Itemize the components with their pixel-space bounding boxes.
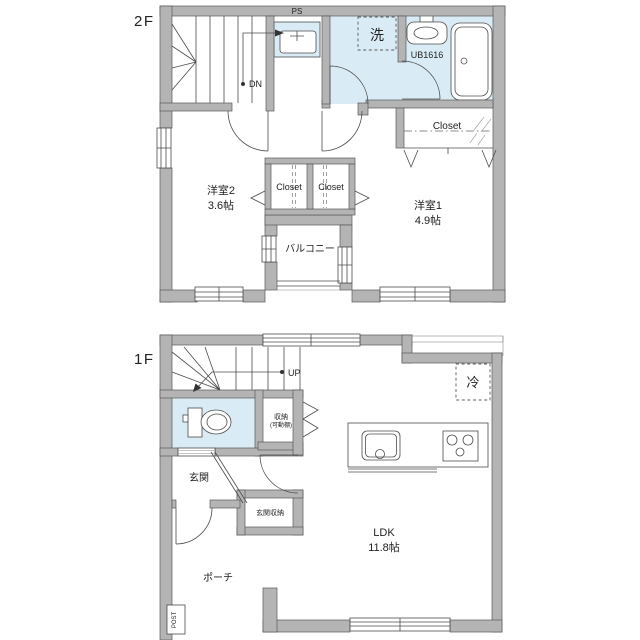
washroom-floor [324,12,398,104]
floor-2f-plan: 2F PS 洗 UB1616 DN Closet Closet Closet 洋… [134,6,505,302]
window [157,128,171,168]
post-label: POST [172,612,178,629]
bifold-door-marks [404,150,496,167]
window [380,287,450,301]
room2-name-label: 洋室2 [207,183,235,197]
closet-right-label: Closet [318,182,344,192]
floor-2f-label: 2F [134,13,155,30]
floor-plan-page: 2F PS 洗 UB1616 DN Closet Closet Closet 洋… [0,0,640,640]
counter-edge [348,469,437,472]
1f-stairs [172,347,300,392]
vanity-basin [280,31,316,53]
storage-bifold-door [303,402,318,437]
room1-name-label: 洋室1 [414,198,442,212]
toilet-sliding-door [178,448,215,456]
balcony-window [338,247,352,283]
bathtub [451,23,492,100]
1f-windows [263,334,450,631]
balcony-label: バルコニー [285,243,335,255]
kitchen-sink [362,431,400,460]
toilet-bowl [201,410,231,434]
1f-walls [160,335,502,640]
porch-label: ポーチ [203,572,233,584]
storage-name-label: 収納 [274,412,288,421]
fridge-label: 冷 [466,375,479,390]
post-box: POST [167,605,185,634]
room2-size-label: 3.6帖 [208,199,234,212]
toilet-tank [188,408,202,437]
bath-sink [407,22,447,44]
ldk-size-label: 11.8帖 [368,541,400,554]
window [263,334,360,346]
room1-size-label: 4.9帖 [415,214,441,227]
floor-plan-drawing: 2F PS 洗 UB1616 DN Closet Closet Closet 洋… [0,0,640,640]
balcony-railing [277,281,340,286]
closet-left-label: Closet [276,182,302,192]
pipe-space-label: PS [292,7,303,16]
unit-bath-label: UB1616 [411,50,444,60]
ldk-name-label: LDK [373,527,395,539]
washer-label: 洗 [370,27,384,43]
stair-dn-label: DN [249,79,262,89]
entrance-label: 玄関 [189,471,209,484]
stair-up-label: UP [288,368,301,378]
window [195,287,243,301]
ldk-door [260,455,298,493]
storage-note-label: (可動棚) [270,421,292,429]
floor-1f-plan: POST 1F UP 冷 収納 (可動棚) 玄関 玄関収納 ポーチ LDK 11… [134,334,503,640]
floor-1f-label: 1F [134,351,155,368]
stove [443,431,478,461]
entrance-storage-label: 玄関収納 [256,508,284,517]
room1-door [322,111,362,151]
stair-direction-line [196,372,282,389]
entrance-door [176,508,212,544]
closet-main-label: Closet [433,121,462,132]
window [350,618,450,631]
room2-door [228,111,268,151]
balcony-window [262,236,276,262]
toilet-handle [183,415,188,422]
